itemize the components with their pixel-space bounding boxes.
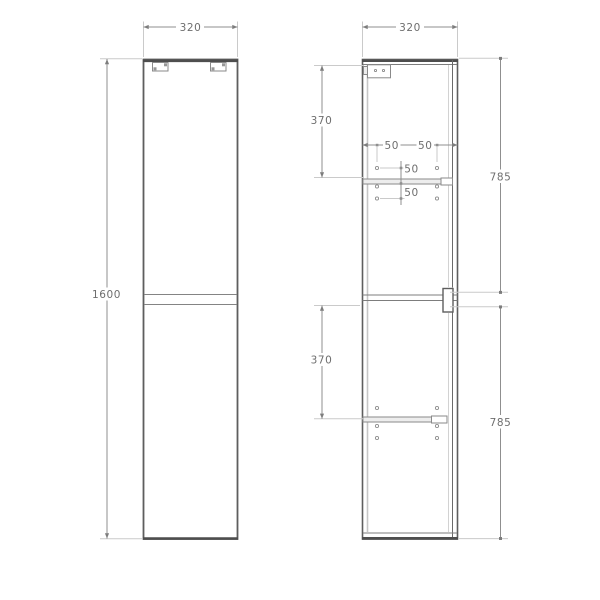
dim-section-width: 320: [363, 21, 458, 58]
dim-label-upper-shelf-offset: 370: [311, 115, 333, 127]
lower-shelf: [363, 416, 447, 423]
dim-lower-shelf-offset: 370: [307, 306, 364, 419]
dim-upper-door-height: 785: [450, 57, 517, 294]
technical-drawing-canvas: 320 1600 320 370 370: [0, 0, 600, 600]
dim-label-hole-inset-right: 50: [418, 140, 433, 152]
dim-label-front-width: 320: [180, 22, 202, 34]
wall-bracket-right: [211, 63, 227, 72]
cabinet-drawing: 320 1600 320 370 370: [0, 0, 600, 600]
section-view: [362, 60, 458, 540]
dim-label-hole-above-shelf: 50: [404, 164, 419, 176]
dim-label-upper-door-height: 785: [490, 171, 512, 183]
dim-label-hole-below-shelf: 50: [404, 187, 419, 199]
upper-shelf: [363, 178, 453, 185]
dim-label-lower-door-height: 785: [490, 417, 512, 429]
wall-bracket-section: [364, 65, 391, 78]
dim-label-lower-shelf-offset: 370: [311, 354, 333, 366]
dim-label-section-width: 320: [399, 22, 421, 34]
front-view: [143, 60, 238, 540]
dim-upper-shelf-offset: 370: [307, 66, 364, 178]
dim-lower-door-height: 785: [450, 305, 517, 540]
dim-label-hole-inset-left: 50: [385, 140, 400, 152]
wall-bracket-left: [153, 63, 169, 72]
cabinet-front-outline: [144, 60, 238, 540]
dim-front-width: 320: [144, 21, 238, 58]
dim-front-height: 1600: [91, 59, 142, 539]
dim-label-front-height: 1600: [92, 289, 121, 301]
